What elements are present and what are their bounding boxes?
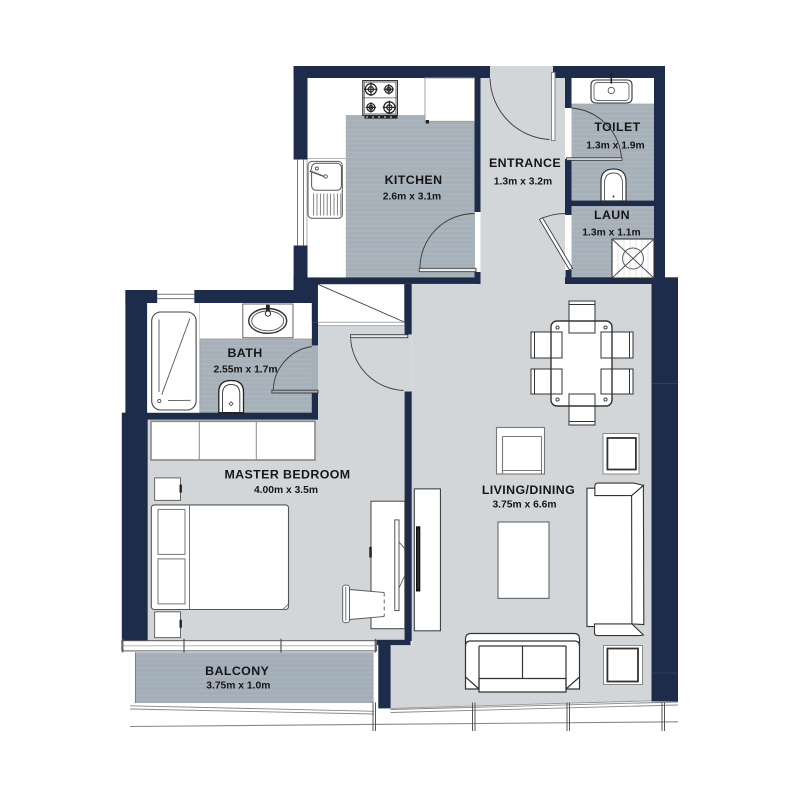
svg-text:3.75m x 6.6m: 3.75m x 6.6m bbox=[492, 500, 556, 511]
svg-text:LAUN: LAUN bbox=[594, 208, 630, 222]
svg-text:2.6m x 3.1m: 2.6m x 3.1m bbox=[383, 192, 441, 203]
svg-text:BALCONY: BALCONY bbox=[205, 664, 269, 678]
svg-text:1.3m x 3.2m: 1.3m x 3.2m bbox=[494, 177, 552, 188]
svg-text:BATH: BATH bbox=[227, 346, 262, 360]
svg-text:LIVING/DINING: LIVING/DINING bbox=[482, 483, 575, 497]
svg-text:KITCHEN: KITCHEN bbox=[385, 173, 443, 187]
svg-text:1.3m x 1.9m: 1.3m x 1.9m bbox=[586, 141, 644, 152]
svg-text:2.55m x 1.7m: 2.55m x 1.7m bbox=[213, 365, 277, 376]
svg-text:4.00m x 3.5m: 4.00m x 3.5m bbox=[254, 485, 318, 496]
svg-text:3.75m x 1.0m: 3.75m x 1.0m bbox=[206, 680, 270, 691]
svg-text:1.3m x 1.1m: 1.3m x 1.1m bbox=[582, 228, 640, 239]
svg-text:MASTER BEDROOM: MASTER BEDROOM bbox=[224, 467, 350, 481]
svg-text:ENTRANCE: ENTRANCE bbox=[489, 156, 561, 170]
svg-text:TOILET: TOILET bbox=[594, 120, 640, 134]
